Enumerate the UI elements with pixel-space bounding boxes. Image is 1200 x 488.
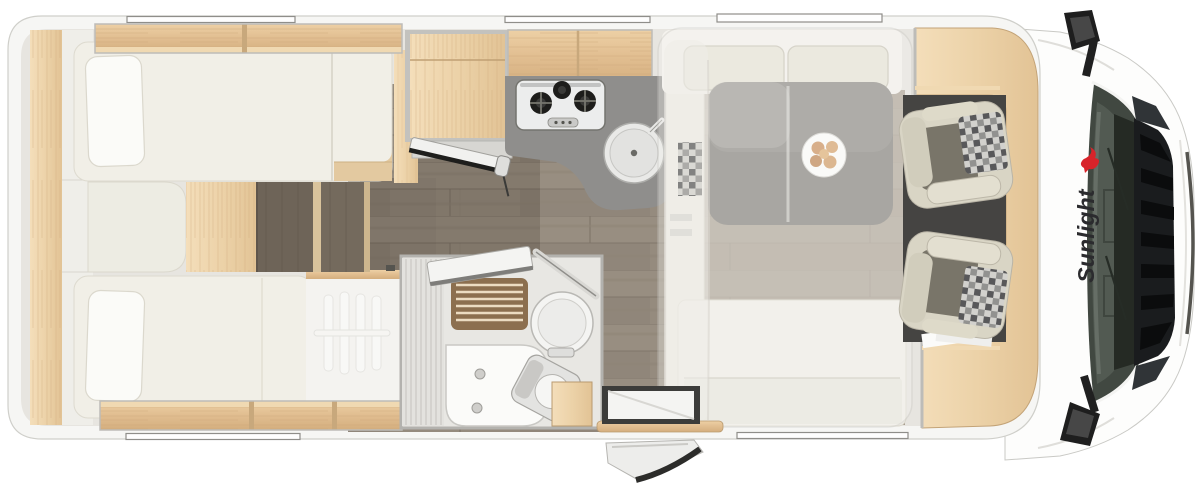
- svg-text:Sunlight: Sunlight: [1073, 188, 1099, 283]
